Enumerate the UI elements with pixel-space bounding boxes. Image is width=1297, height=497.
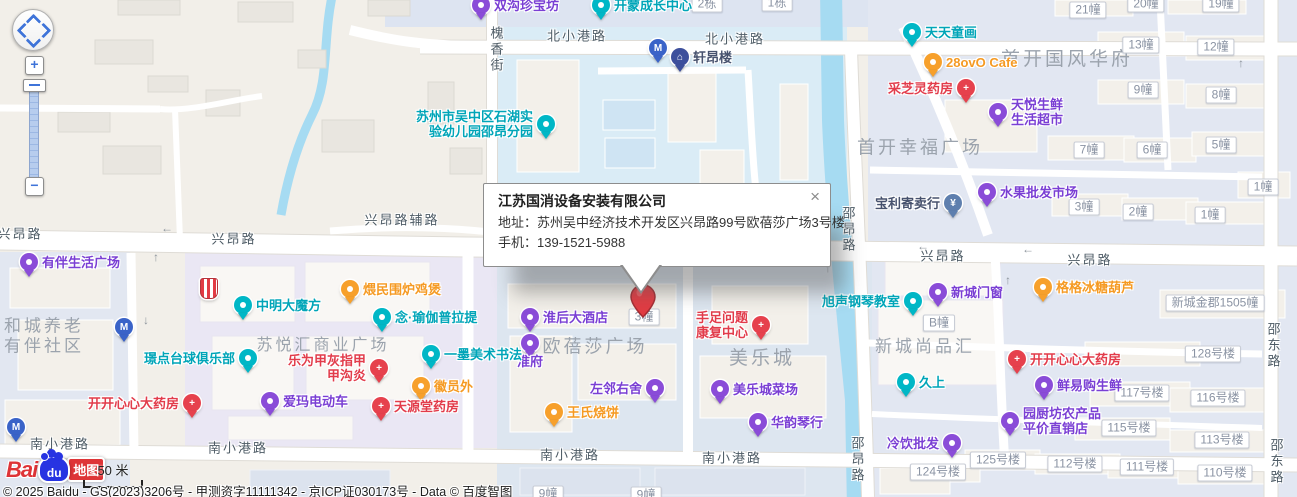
pan-control[interactable]	[12, 9, 54, 51]
pan-right-icon[interactable]	[36, 23, 52, 39]
zoom-in-button[interactable]: +	[25, 56, 44, 75]
popup-title: 江苏国消设备安装有限公司	[498, 191, 666, 211]
zoom-slider-handle[interactable]	[23, 79, 46, 92]
logo-du-text: du	[40, 466, 68, 480]
popup-address-label: 地址：	[498, 215, 537, 230]
info-popup: 江苏国消设备安装有限公司 地址：苏州吴中经济技术开发区兴昂路99号欧蓓莎广场3号…	[483, 183, 831, 267]
popup-address-value: 苏州吴中经济技术开发区兴昂路99号欧蓓莎广场3号楼	[537, 215, 845, 230]
popup-close-icon[interactable]: ×	[810, 188, 820, 205]
zoom-slider-track[interactable]	[29, 90, 39, 180]
popup-address: 地址：苏州吴中经济技术开发区兴昂路99号欧蓓莎广场3号楼	[498, 212, 845, 231]
baidu-paw-icon: du	[38, 456, 70, 483]
popup-tail-fill	[622, 264, 660, 291]
scale-label: 50 米	[83, 460, 143, 479]
popup-phone-label: 手机：	[498, 235, 537, 250]
popup-phone-value: 139-1521-5988	[537, 235, 625, 250]
copyright-text: © 2025 Baidu - GS(2023)3206号 - 甲测资字11111…	[3, 481, 512, 497]
logo-bai-text: Bai	[6, 457, 37, 483]
popup-phone: 手机：139-1521-5988	[498, 232, 625, 251]
map-viewport[interactable]: 首开国风华府首开幸福广场新城尚品汇美乐城欧蓓莎广场苏悦汇商业广场和城养老有伴社区…	[0, 0, 1297, 497]
pan-down-icon[interactable]	[26, 33, 42, 49]
zoom-out-button[interactable]: −	[25, 177, 44, 196]
